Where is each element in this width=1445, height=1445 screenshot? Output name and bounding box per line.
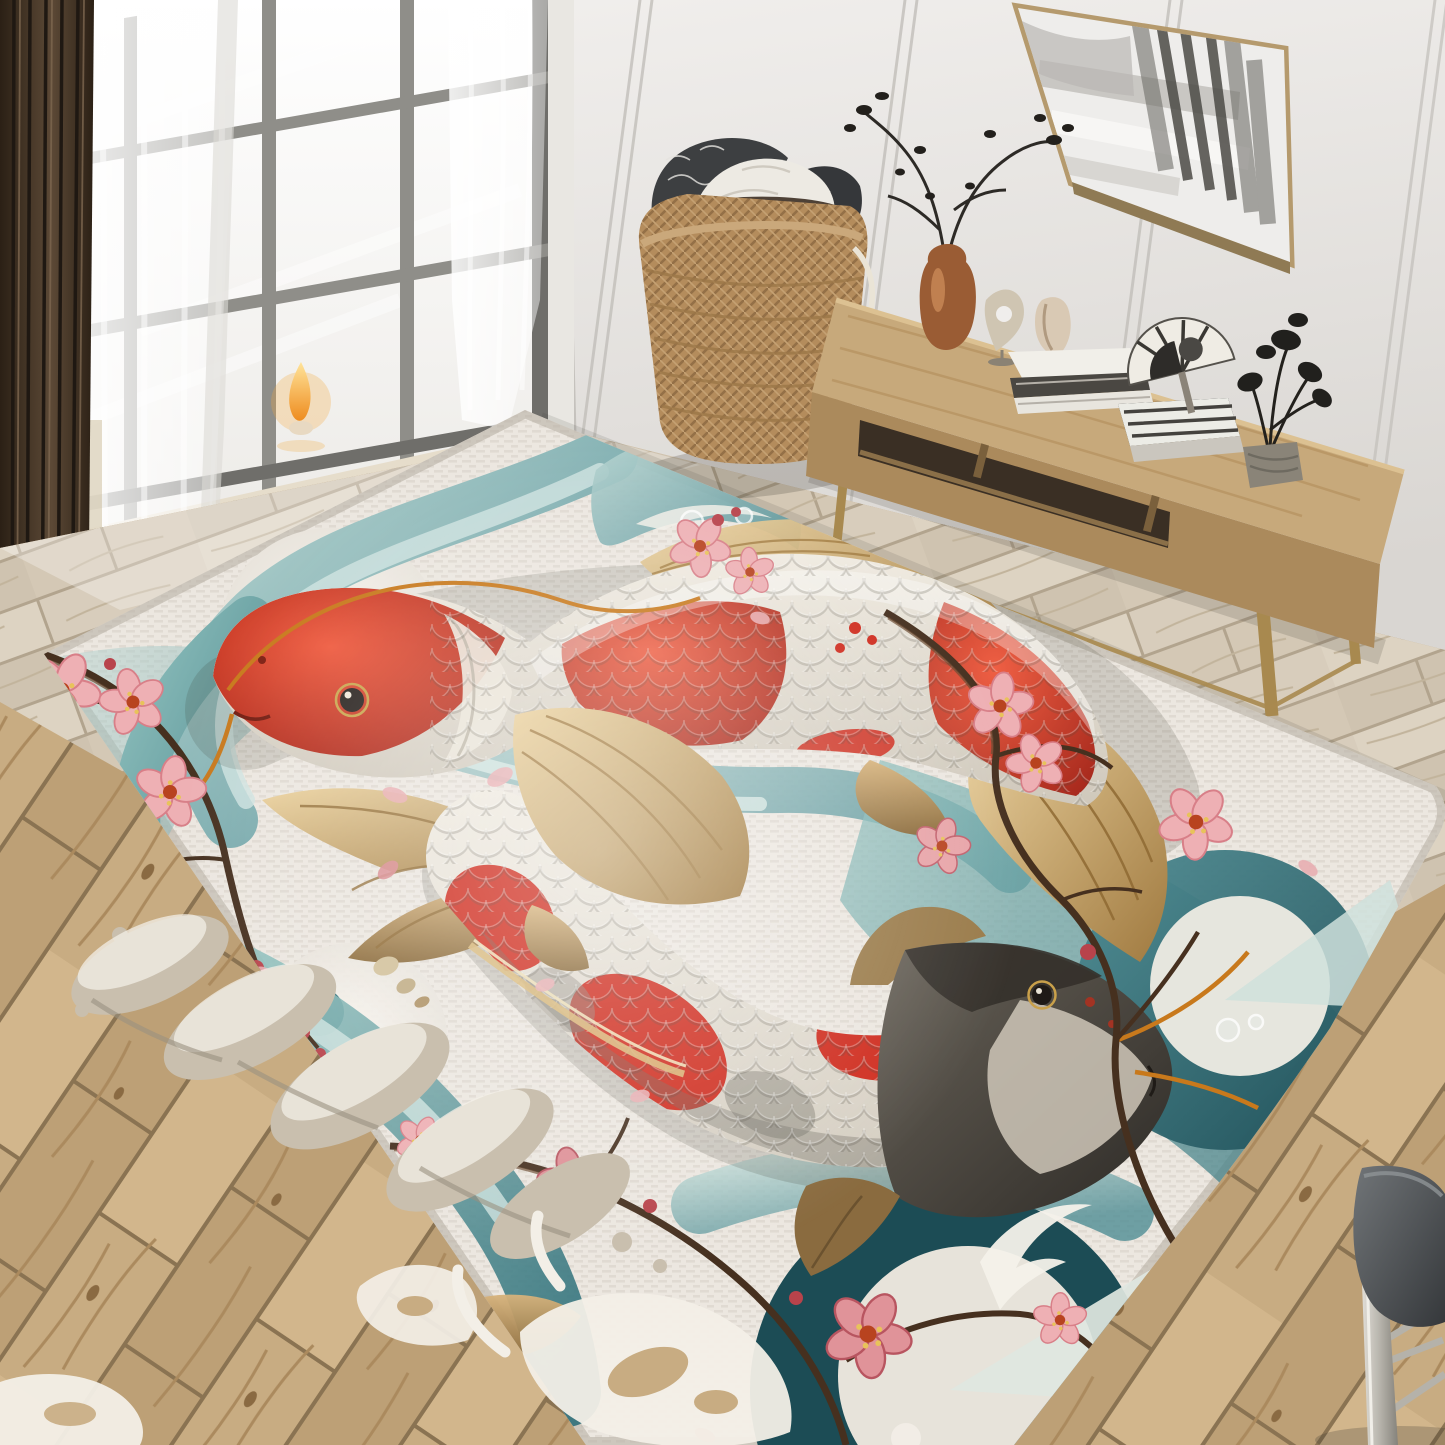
window-trim: [548, 0, 574, 448]
living-room-photo: [0, 0, 1445, 1445]
scene-canvas: [0, 0, 1445, 1445]
